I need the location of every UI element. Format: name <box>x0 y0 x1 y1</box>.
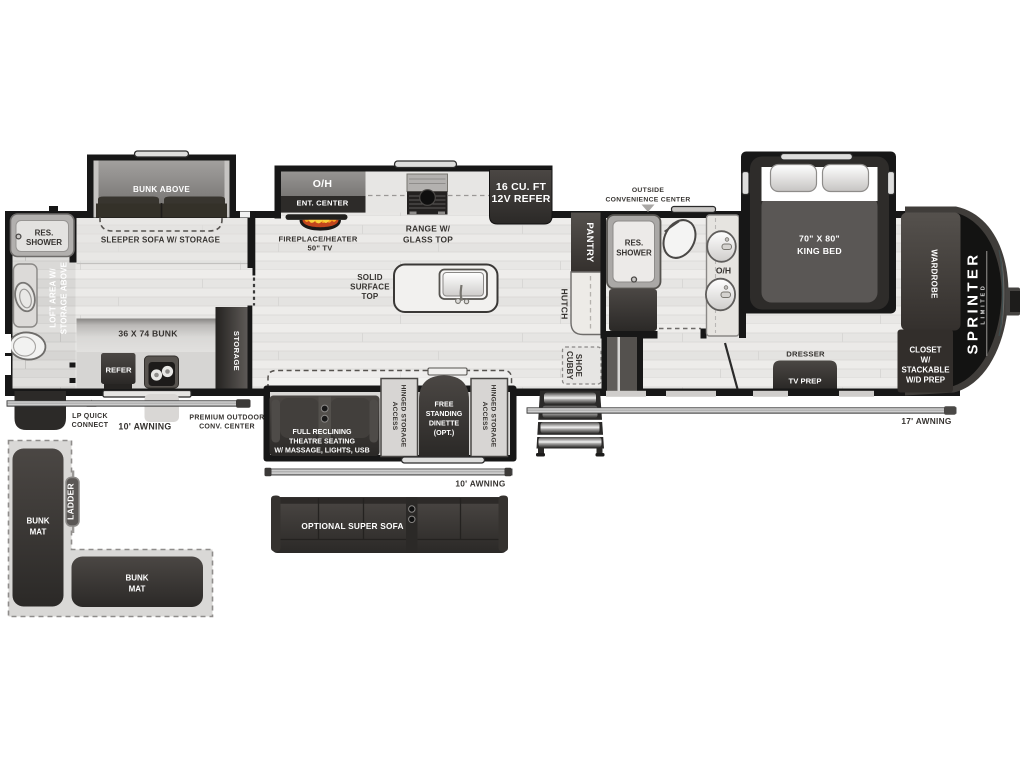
svg-text:REFER: REFER <box>105 366 132 375</box>
svg-text:10' AWNING: 10' AWNING <box>118 422 171 432</box>
svg-text:O/H: O/H <box>716 266 731 276</box>
svg-text:BUNK ABOVE: BUNK ABOVE <box>133 185 190 194</box>
svg-text:HUTCH: HUTCH <box>560 288 570 319</box>
svg-text:RES.: RES. <box>625 239 643 248</box>
svg-text:LADDER: LADDER <box>66 483 76 520</box>
svg-text:16 CU. FT12V REFER: 16 CU. FT12V REFER <box>492 181 551 205</box>
svg-text:PANTRY: PANTRY <box>584 222 595 262</box>
svg-text:RES.: RES. <box>35 229 54 238</box>
svg-text:TV PREP: TV PREP <box>789 377 822 386</box>
svg-text:SHOWER: SHOWER <box>26 238 62 247</box>
svg-text:LIMITED: LIMITED <box>981 283 987 324</box>
svg-text:DRESSER: DRESSER <box>786 350 825 359</box>
svg-text:STORAGE: STORAGE <box>232 331 241 371</box>
svg-text:SHOECUBBY: SHOECUBBY <box>565 351 583 381</box>
svg-text:WARDROBE: WARDROBE <box>930 249 939 298</box>
svg-text:10' AWNING: 10' AWNING <box>455 479 505 489</box>
svg-text:OPTIONAL SUPER SOFA: OPTIONAL SUPER SOFA <box>301 521 403 531</box>
svg-text:SHOWER: SHOWER <box>616 249 652 258</box>
svg-text:ENT. CENTER: ENT. CENTER <box>297 199 349 208</box>
svg-text:SPRINTER: SPRINTER <box>965 251 982 354</box>
svg-text:SLEEPER SOFA W/ STORAGE: SLEEPER SOFA W/ STORAGE <box>101 236 221 245</box>
svg-text:17' AWNING: 17' AWNING <box>901 416 951 426</box>
svg-text:O/H: O/H <box>313 178 333 190</box>
svg-text:36 X 74 BUNK: 36 X 74 BUNK <box>118 329 178 339</box>
svg-text:RANGE W/GLASS TOP: RANGE W/GLASS TOP <box>403 224 453 245</box>
